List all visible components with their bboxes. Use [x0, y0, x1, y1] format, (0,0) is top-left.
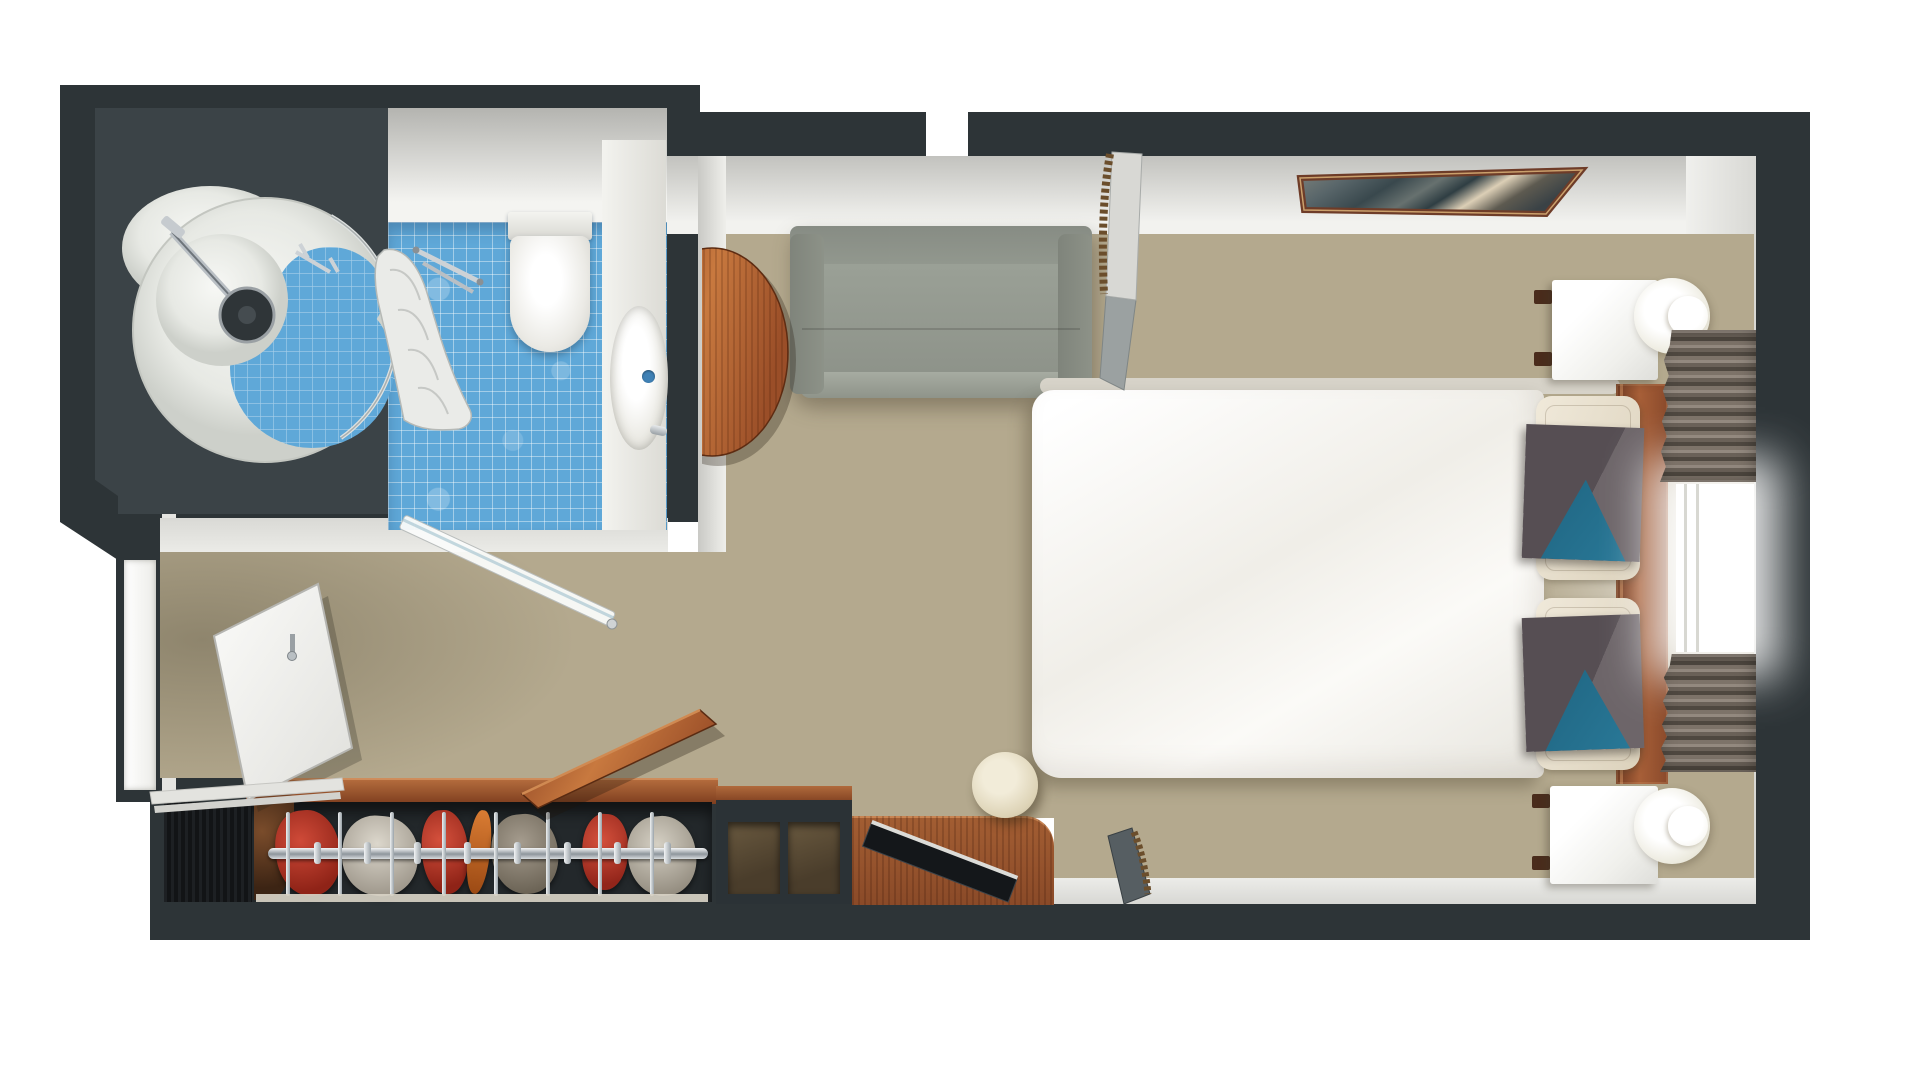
closet-top-edge — [246, 778, 718, 804]
wall-gap-notch — [926, 85, 968, 157]
sofa — [790, 226, 1092, 398]
hanger — [494, 812, 498, 896]
shelf-opening — [788, 822, 840, 894]
bathroom-inner-walls — [95, 108, 390, 514]
curtain-bottom — [1658, 654, 1756, 772]
wall-top — [660, 112, 1810, 158]
wall-lamp-bottom — [1634, 788, 1710, 864]
closet — [164, 802, 712, 902]
lamp-glow — [1668, 806, 1708, 846]
curtain-top — [1658, 330, 1756, 482]
sofa-seat — [798, 264, 1084, 380]
desk — [852, 816, 1054, 905]
rail-bracket — [464, 842, 471, 864]
hanger — [650, 812, 654, 896]
hanger — [286, 812, 290, 896]
rail-bracket — [564, 842, 571, 864]
pillow-accent-2 — [1522, 614, 1645, 752]
sofa-armrest-left — [790, 234, 824, 394]
window-frame-line — [1684, 484, 1687, 652]
rail-bracket — [364, 842, 371, 864]
shelf-opening — [728, 822, 780, 894]
hanger — [546, 812, 550, 896]
hanger — [390, 812, 394, 896]
closet-rail — [268, 848, 708, 859]
sofa-armrest-right — [1058, 234, 1092, 394]
rail-bracket — [314, 842, 321, 864]
sofa-seam — [802, 328, 1080, 330]
pillow-accent-1 — [1522, 424, 1645, 562]
bed-duvet — [1032, 390, 1544, 778]
rail-bracket — [614, 842, 621, 864]
toilet — [510, 236, 590, 352]
floor-plan — [0, 0, 1920, 1087]
sink-drain-icon — [642, 370, 655, 383]
stool — [972, 752, 1038, 818]
nightstand-leg — [1532, 856, 1550, 870]
rail-bracket — [414, 842, 421, 864]
window-frame-line — [1696, 484, 1699, 652]
nightstand-leg — [1534, 352, 1552, 366]
pillow-blue-triangle — [1522, 424, 1645, 562]
pillow-blue-triangle — [1522, 614, 1645, 752]
hanger — [338, 812, 342, 896]
hanger — [598, 812, 602, 896]
shelf-unit — [716, 800, 852, 904]
inner-wall-left — [698, 156, 726, 552]
entry-doorway — [124, 560, 156, 790]
closet-cabinet — [164, 802, 252, 902]
closet-floor — [256, 894, 708, 902]
rail-bracket — [664, 842, 671, 864]
rail-bracket — [514, 842, 521, 864]
nightstand-leg — [1532, 794, 1550, 808]
desk-wood-grain — [852, 816, 1054, 905]
nightstand-leg — [1534, 290, 1552, 304]
hanger — [442, 812, 446, 896]
inner-wall-top — [660, 156, 1756, 234]
wall-right — [1754, 112, 1810, 940]
window — [1676, 484, 1754, 652]
